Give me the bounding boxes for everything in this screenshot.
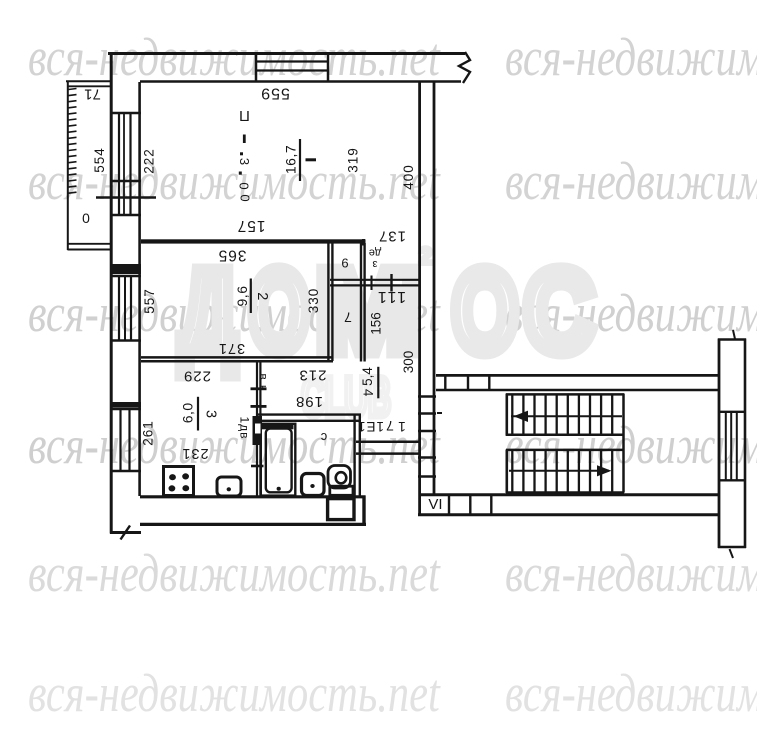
svg-text:319: 319: [346, 147, 361, 173]
svg-text:300: 300: [401, 351, 416, 374]
svg-text:261: 261: [141, 420, 156, 446]
svg-text:П: П: [239, 107, 250, 124]
svg-text:1дв: 1дв: [238, 416, 252, 439]
svg-text:213: 213: [298, 367, 326, 384]
svg-text:к: к: [257, 385, 271, 391]
svg-text:157: 157: [237, 217, 266, 234]
svg-text:156: 156: [368, 312, 383, 335]
svg-text:198: 198: [295, 393, 323, 410]
svg-text:4: 4: [361, 389, 376, 397]
svg-text:0: 0: [237, 182, 252, 189]
svg-text:в: в: [257, 373, 271, 379]
svg-text:1: 1: [398, 419, 406, 435]
svg-text:371: 371: [218, 340, 245, 356]
svg-text:5,4: 5,4: [360, 367, 375, 386]
svg-text:557: 557: [142, 288, 157, 314]
svg-text:3: 3: [237, 158, 252, 165]
svg-text:3: 3: [202, 410, 218, 418]
svg-text:с: с: [320, 430, 327, 445]
svg-text:7: 7: [344, 310, 352, 326]
svg-text:9,6: 9,6: [234, 286, 250, 307]
svg-text:7: 7: [386, 418, 394, 434]
svg-text:71: 71: [84, 86, 101, 103]
svg-text:0: 0: [237, 194, 252, 201]
svg-text:365: 365: [218, 247, 247, 264]
svg-text:222: 222: [142, 148, 157, 174]
svg-text:2: 2: [254, 292, 270, 300]
svg-text:0: 0: [82, 211, 90, 227]
svg-text:6,0: 6,0: [179, 402, 195, 423]
svg-text:16,7: 16,7: [283, 145, 299, 174]
svg-text:1Е1: 1Е1: [357, 419, 384, 434]
svg-text:9: 9: [341, 256, 348, 271]
svg-text:400: 400: [401, 164, 416, 190]
svg-text:де: де: [369, 247, 382, 259]
svg-text:559: 559: [260, 85, 290, 102]
svg-text:231: 231: [181, 445, 208, 461]
svg-text:330: 330: [306, 288, 321, 314]
svg-text:137: 137: [378, 228, 406, 245]
svg-text:229: 229: [183, 368, 211, 385]
svg-text:554: 554: [92, 147, 107, 173]
svg-text:111: 111: [376, 288, 406, 305]
svg-text:VI: VI: [428, 496, 442, 513]
svg-text:з: з: [372, 258, 377, 270]
